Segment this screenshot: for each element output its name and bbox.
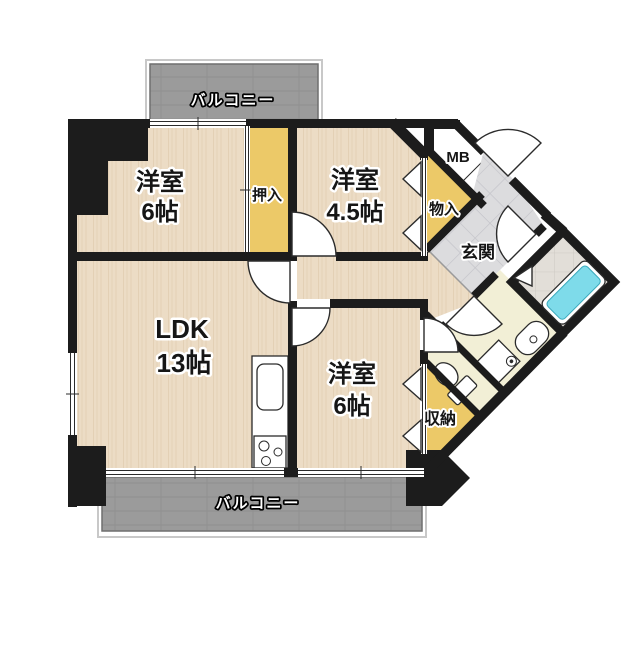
floor-plan: バルコニー 洋室 6帖 押入 洋室 4.5帖 MB 物入 玄関 LDK 13帖 … xyxy=(0,0,639,651)
balcony-top-label: バルコニー xyxy=(191,92,276,109)
room-south-size: 6帖 xyxy=(333,393,370,420)
room-south-name: 洋室 xyxy=(328,360,376,388)
room-west-size: 6帖 xyxy=(141,199,178,226)
meter-box-label: MB xyxy=(446,149,469,166)
oshiire-label: 押入 xyxy=(252,186,282,204)
hall-floor xyxy=(297,261,424,299)
shunou-label: 収納 xyxy=(424,409,456,428)
room-ne-size: 4.5帖 xyxy=(326,199,383,226)
genkan-label: 玄関 xyxy=(461,242,495,262)
balcony-bottom-label: バルコニー xyxy=(216,495,301,512)
kitchen-counter xyxy=(252,356,288,468)
ldk-size: 13帖 xyxy=(157,348,212,378)
room-west-name: 洋室 xyxy=(136,168,184,196)
kitchen-sink xyxy=(257,364,283,410)
monoire-label: 物入 xyxy=(429,200,459,218)
ldk-name: LDK xyxy=(155,314,209,344)
room-ne-name: 洋室 xyxy=(331,166,379,194)
